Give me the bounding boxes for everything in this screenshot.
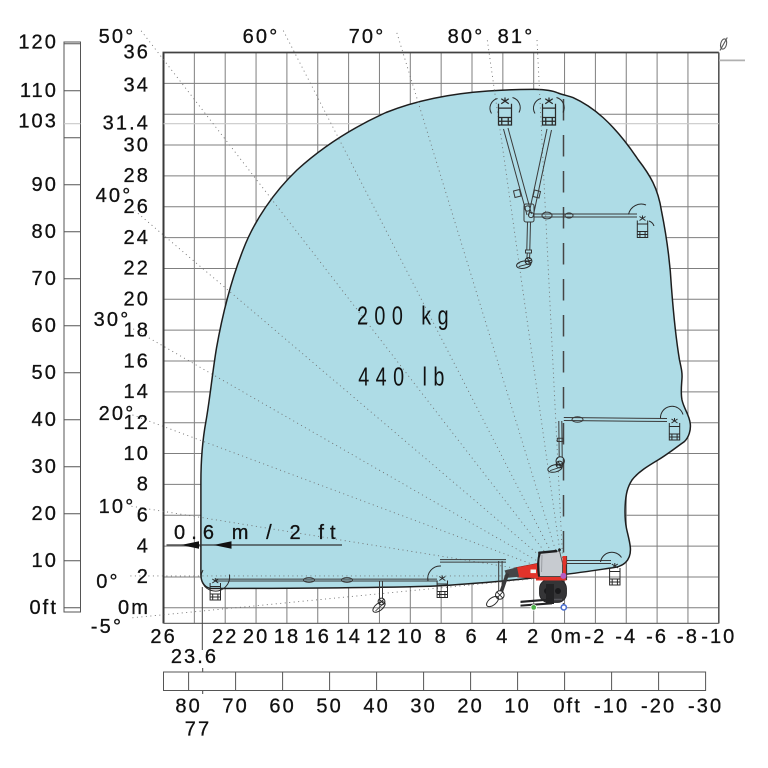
- svg-text:4: 4: [496, 626, 509, 648]
- svg-text:0.6 m / 2 ft: 0.6 m / 2 ft: [174, 522, 342, 544]
- svg-text:10: 10: [124, 443, 150, 465]
- svg-text:16: 16: [124, 350, 150, 372]
- svg-text:80°: 80°: [448, 26, 485, 48]
- svg-text:30: 30: [410, 696, 436, 718]
- svg-text:0ft: 0ft: [553, 696, 582, 718]
- svg-text:26: 26: [150, 626, 176, 648]
- svg-text:-30: -30: [688, 696, 723, 718]
- svg-text:20°: 20°: [99, 403, 136, 425]
- svg-text:-2: -2: [584, 626, 606, 648]
- svg-text:-4: -4: [615, 626, 637, 648]
- svg-text:14: 14: [335, 626, 361, 648]
- svg-text:31.4: 31.4: [103, 113, 150, 135]
- svg-text:70: 70: [222, 696, 248, 718]
- svg-text:60: 60: [269, 696, 295, 718]
- svg-text:-20: -20: [641, 696, 676, 718]
- svg-text:440 lb: 440 lb: [358, 362, 451, 391]
- svg-text:20: 20: [243, 626, 269, 648]
- svg-text:30°: 30°: [94, 309, 131, 331]
- svg-text:70: 70: [32, 268, 58, 290]
- svg-text:-8: -8: [677, 626, 699, 648]
- svg-text:6: 6: [137, 505, 150, 527]
- svg-text:16: 16: [305, 626, 331, 648]
- svg-text:34: 34: [124, 75, 150, 97]
- svg-text:23.6: 23.6: [171, 646, 218, 668]
- svg-text:40: 40: [363, 696, 389, 718]
- svg-text:81°: 81°: [498, 26, 535, 48]
- svg-text:60: 60: [32, 315, 58, 337]
- svg-text:20: 20: [32, 503, 58, 525]
- svg-text:40°: 40°: [96, 185, 133, 207]
- svg-text:0m: 0m: [551, 626, 583, 648]
- svg-text:6: 6: [465, 626, 478, 648]
- svg-text:50°: 50°: [99, 26, 136, 48]
- svg-text:4: 4: [137, 535, 150, 557]
- svg-text:40: 40: [32, 409, 58, 431]
- svg-text:80: 80: [32, 221, 58, 243]
- svg-text:20: 20: [124, 289, 150, 311]
- svg-text:2: 2: [527, 626, 540, 648]
- svg-text:0ft: 0ft: [29, 597, 58, 619]
- svg-text:22: 22: [124, 258, 150, 280]
- svg-text:90: 90: [32, 174, 58, 196]
- svg-text:30: 30: [124, 134, 150, 156]
- svg-text:18: 18: [274, 626, 300, 648]
- svg-text:28: 28: [124, 165, 150, 187]
- svg-text:10: 10: [397, 626, 423, 648]
- svg-text:20: 20: [457, 696, 483, 718]
- svg-text:50: 50: [32, 362, 58, 384]
- svg-text:22: 22: [212, 626, 238, 648]
- svg-text:80: 80: [175, 696, 201, 718]
- svg-text:-6: -6: [646, 626, 668, 648]
- svg-text:0°: 0°: [96, 571, 120, 593]
- svg-text:8: 8: [137, 474, 150, 496]
- svg-text:10°: 10°: [99, 496, 136, 518]
- svg-text:10: 10: [32, 550, 58, 572]
- svg-text:77: 77: [185, 719, 211, 741]
- svg-text:10: 10: [504, 696, 530, 718]
- svg-text:-10: -10: [701, 626, 736, 648]
- svg-text:120: 120: [18, 32, 58, 54]
- svg-text:-10: -10: [594, 696, 629, 718]
- svg-text:110: 110: [20, 80, 58, 102]
- svg-text:14: 14: [124, 381, 150, 403]
- svg-text:12: 12: [366, 626, 392, 648]
- svg-text:200 kg: 200 kg: [357, 301, 455, 330]
- svg-text:60°: 60°: [243, 26, 280, 48]
- svg-text:24: 24: [124, 227, 150, 249]
- svg-text:-5°: -5°: [91, 616, 123, 638]
- svg-text:103: 103: [18, 111, 58, 133]
- svg-text:70°: 70°: [349, 26, 386, 48]
- svg-text:50: 50: [316, 696, 342, 718]
- svg-text:8: 8: [435, 626, 448, 648]
- svg-text:30: 30: [32, 456, 58, 478]
- svg-text:2: 2: [137, 566, 150, 588]
